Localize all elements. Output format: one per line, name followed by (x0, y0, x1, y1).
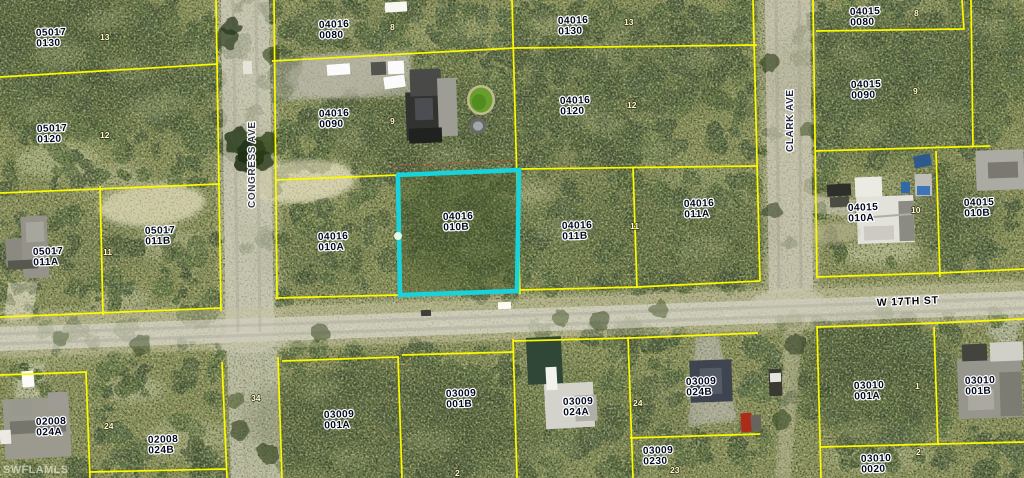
svg-text:10: 10 (911, 205, 921, 215)
svg-text:1: 1 (915, 381, 920, 391)
svg-text:2: 2 (455, 468, 460, 478)
svg-text:8: 8 (914, 8, 919, 18)
svg-text:9: 9 (390, 116, 395, 126)
svg-text:24: 24 (104, 421, 114, 431)
svg-text:24: 24 (633, 398, 643, 408)
svg-text:11: 11 (103, 247, 112, 257)
svg-text:13: 13 (100, 32, 110, 42)
svg-text:CONGRESS AVE: CONGRESS AVE (247, 121, 258, 208)
svg-text:9: 9 (913, 86, 918, 96)
svg-text:12: 12 (627, 100, 637, 110)
svg-text:34: 34 (251, 393, 261, 403)
svg-text:8: 8 (390, 22, 395, 32)
svg-text:12: 12 (100, 130, 110, 140)
svg-text:13: 13 (624, 17, 634, 27)
svg-text:11: 11 (630, 221, 639, 231)
svg-text:23: 23 (670, 465, 680, 475)
svg-text:SWFLAMLS: SWFLAMLS (3, 464, 69, 476)
svg-text:2: 2 (916, 447, 921, 457)
svg-text:CLARK AVE: CLARK AVE (785, 89, 796, 152)
